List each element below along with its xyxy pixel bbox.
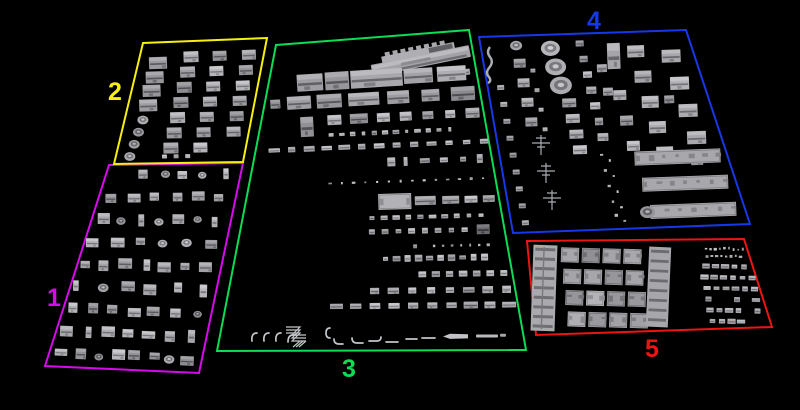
svg-text:5: 5 [645,335,659,363]
svg-text:2: 2 [108,78,122,106]
svg-text:3: 3 [342,355,356,383]
svg-text:4: 4 [587,7,601,35]
svg-text:1: 1 [47,284,61,312]
